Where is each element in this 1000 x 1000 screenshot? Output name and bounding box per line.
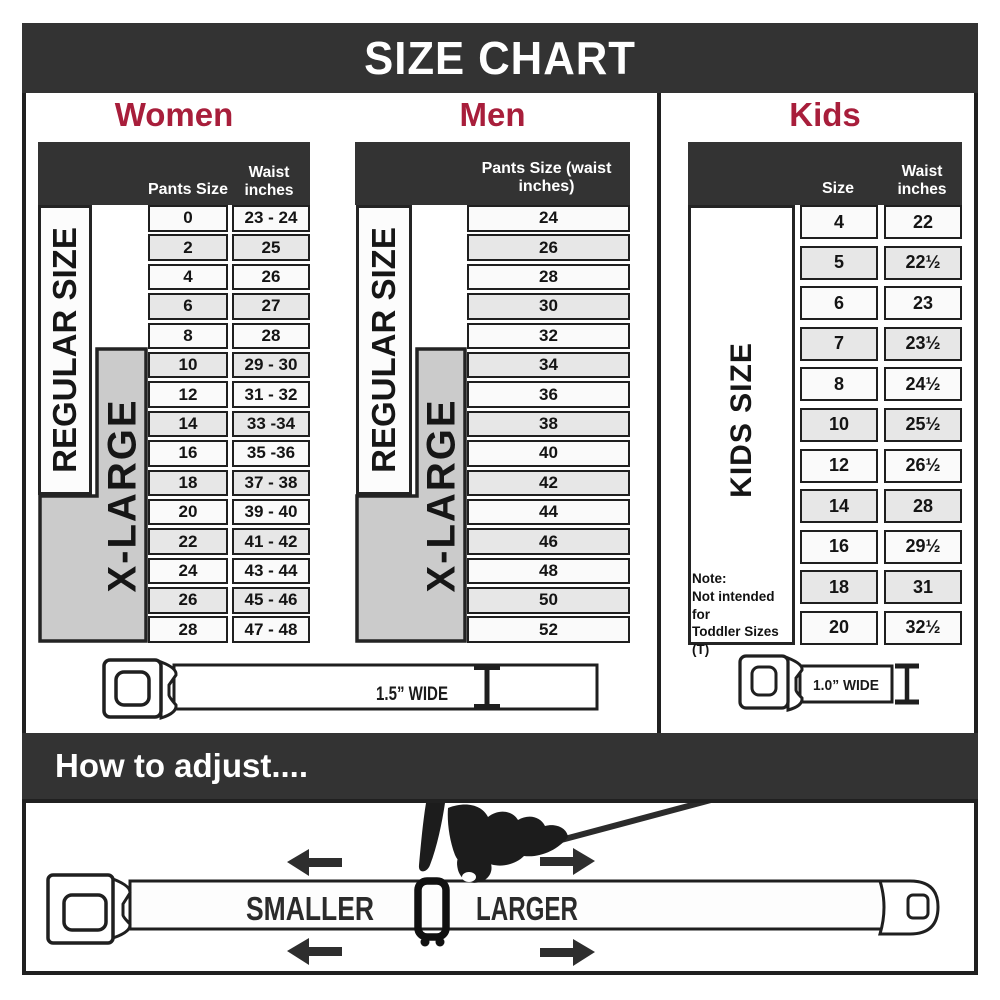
waist-inches-cell: 22½ [884, 246, 962, 280]
waist-inches-cell: 28 [884, 489, 962, 523]
men-table-row: 36 [467, 381, 630, 408]
men-section-heading: Men [355, 96, 630, 134]
waist-inches-cell: 41 - 42 [232, 528, 310, 555]
size-cell: 12 [800, 449, 878, 483]
pants-size-cell: 50 [467, 587, 630, 614]
men-table-row: 42 [467, 470, 630, 497]
pants-size-cell: 22 [148, 528, 228, 555]
waist-inches-cell: 31 [884, 570, 962, 604]
buckle-button [64, 895, 106, 930]
women-table-row: 8 28 [148, 323, 310, 350]
buckle-lip [113, 879, 130, 938]
waist-inches-cell: 45 - 46 [232, 587, 310, 614]
pants-size-cell: 30 [467, 293, 630, 320]
women-col-waist-inches: Waist inches [228, 164, 310, 199]
men-col-pants-size: Pants Size (waist inches) [463, 160, 630, 196]
women-table-row: 24 43 - 44 [148, 558, 310, 585]
adjust-diagram-panel: SMALLER LARGER [22, 799, 978, 975]
kids-section-heading: Kids [688, 96, 962, 134]
waist-inches-cell: 29 - 30 [232, 352, 310, 379]
pants-size-cell: 16 [148, 440, 228, 467]
kids-table-row: 4 22 [800, 205, 962, 239]
kids-table-row: 6 23 [800, 286, 962, 320]
kids-table-header: Size Waist inches [688, 142, 962, 205]
width-measure-icon [895, 664, 919, 704]
pants-size-cell: 20 [148, 499, 228, 526]
adjuster-foot [421, 938, 430, 947]
adjuster-foot [436, 938, 445, 947]
pants-size-cell: 6 [148, 293, 228, 320]
waist-inches-cell: 26 [232, 264, 310, 291]
women-rows: 0 23 - 24 2 25 4 26 6 27 8 28 [148, 205, 310, 643]
adjust-diagram: SMALLER LARGER [26, 803, 974, 971]
waist-inches-cell: 22 [884, 205, 962, 239]
kids-table-row: 18 31 [800, 570, 962, 604]
waist-inches-cell: 33 -34 [232, 411, 310, 438]
pants-size-cell: 26 [148, 587, 228, 614]
women-section-heading: Women [38, 96, 310, 134]
men-rows: 24 26 28 30 32 34 36 [467, 205, 630, 643]
size-cell: 18 [800, 570, 878, 604]
pants-size-cell: 0 [148, 205, 228, 232]
men-table-row: 50 [467, 587, 630, 614]
waist-inches-cell: 24½ [884, 367, 962, 401]
kids-table-row: 7 23½ [800, 327, 962, 361]
men-table-row: 40 [467, 440, 630, 467]
waist-inches-cell: 23 [884, 286, 962, 320]
pants-size-cell: 28 [148, 616, 228, 643]
men-table-row: 48 [467, 558, 630, 585]
pants-size-cell: 42 [467, 470, 630, 497]
kids-col-size: Size [796, 180, 880, 198]
women-table-row: 14 33 -34 [148, 411, 310, 438]
size-cell: 6 [800, 286, 878, 320]
kids-size-label: KIDS SIZE [725, 342, 759, 498]
kids-col-waist-inches: Waist inches [882, 163, 962, 198]
waist-inches-cell: 25 [232, 234, 310, 261]
kids-table-row: 10 25½ [800, 408, 962, 442]
women-col-pants-size: Pants Size [144, 181, 232, 199]
women-table-row: 26 45 - 46 [148, 587, 310, 614]
pants-size-cell: 14 [148, 411, 228, 438]
women-regular-size-band: REGULAR SIZE [38, 205, 92, 495]
buckle-button [752, 667, 776, 695]
waist-inches-cell: 28 [232, 323, 310, 350]
pants-size-cell: 46 [467, 528, 630, 555]
pants-size-cell: 12 [148, 381, 228, 408]
pants-size-cell: 44 [467, 499, 630, 526]
size-cell: 16 [800, 530, 878, 564]
women-table-row: 0 23 - 24 [148, 205, 310, 232]
men-table-row: 46 [467, 528, 630, 555]
kids-note: Note: Not intended for Toddler Sizes (T) [692, 570, 792, 659]
size-cell: 8 [800, 367, 878, 401]
how-to-adjust-heading: How to adjust.... [22, 747, 308, 785]
pants-size-cell: 36 [467, 381, 630, 408]
women-table-header: Pants Size Waist inches [38, 142, 310, 205]
pants-size-cell: 40 [467, 440, 630, 467]
pants-size-cell: 32 [467, 323, 630, 350]
pants-size-cell: 4 [148, 264, 228, 291]
men-xlarge-label: X-LARGE [420, 398, 465, 592]
size-cell: 10 [800, 408, 878, 442]
waist-inches-cell: 26½ [884, 449, 962, 483]
men-table-row: 52 [467, 616, 630, 643]
waist-inches-cell: 47 - 48 [232, 616, 310, 643]
kids-table-row: 14 28 [800, 489, 962, 523]
women-table-row: 10 29 - 30 [148, 352, 310, 379]
kids-rows: 4 22 5 22½ 6 23 7 23½ 8 24½ [800, 205, 962, 645]
pants-size-cell: 24 [467, 205, 630, 232]
kids-belt-illustration: 1.0” WIDE [728, 650, 932, 720]
women-table-row: 20 39 - 40 [148, 499, 310, 526]
pants-size-cell: 10 [148, 352, 228, 379]
men-xlarge-label-wrap: X-LARGE [417, 347, 467, 643]
size-cell: 14 [800, 489, 878, 523]
men-table-row: 34 [467, 352, 630, 379]
waist-inches-cell: 35 -36 [232, 440, 310, 467]
men-table-row: 26 [467, 234, 630, 261]
pants-size-cell: 8 [148, 323, 228, 350]
pants-size-cell: 24 [148, 558, 228, 585]
men-table-header: Pants Size (waist inches) [355, 142, 630, 205]
size-cell: 4 [800, 205, 878, 239]
women-table-row: 28 47 - 48 [148, 616, 310, 643]
kids-size-label-wrap: KIDS SIZE [688, 235, 795, 605]
waist-inches-cell: 29½ [884, 530, 962, 564]
pants-size-cell: 18 [148, 470, 228, 497]
how-to-adjust-bar: How to adjust.... [22, 733, 978, 799]
women-table-row: 12 31 - 32 [148, 381, 310, 408]
men-table-row: 44 [467, 499, 630, 526]
men-table-row: 30 [467, 293, 630, 320]
waist-inches-cell: 43 - 44 [232, 558, 310, 585]
section-divider [657, 93, 661, 733]
women-table-row: 6 27 [148, 293, 310, 320]
women-xlarge-label: X-LARGE [100, 398, 145, 592]
pants-size-cell: 52 [467, 616, 630, 643]
title-bar: SIZE CHART [22, 23, 978, 93]
women-table-row: 22 41 - 42 [148, 528, 310, 555]
waist-inches-cell: 31 - 32 [232, 381, 310, 408]
men-regular-size-band: REGULAR SIZE [356, 205, 412, 495]
belt-tip-hole [908, 895, 928, 918]
kids-table-row: 8 24½ [800, 367, 962, 401]
pants-size-cell: 26 [467, 234, 630, 261]
buckle-button [116, 672, 149, 705]
kids-note-line2: Not intended for [692, 588, 792, 624]
waist-inches-cell: 23 - 24 [232, 205, 310, 232]
kids-table-row: 16 29½ [800, 530, 962, 564]
page-title: SIZE CHART [364, 31, 636, 85]
women-table-row: 16 35 -36 [148, 440, 310, 467]
kids-table-row: 20 32½ [800, 611, 962, 645]
men-table-row: 28 [467, 264, 630, 291]
waist-inches-cell: 27 [232, 293, 310, 320]
women-table-row: 2 25 [148, 234, 310, 261]
women-regular-size-label: REGULAR SIZE [46, 227, 84, 473]
size-cell: 5 [800, 246, 878, 280]
men-table-row: 32 [467, 323, 630, 350]
adult-belt-illustration: 1.5” WIDE [95, 650, 615, 730]
waist-inches-cell: 32½ [884, 611, 962, 645]
waist-inches-cell: 37 - 38 [232, 470, 310, 497]
size-chart-infographic: SIZE CHART Women Men Kids Pants Size Wai… [0, 0, 1000, 1000]
adult-belt-width-label: 1.5” WIDE [376, 684, 448, 705]
pants-size-cell: 48 [467, 558, 630, 585]
size-cell: 20 [800, 611, 878, 645]
smaller-label: SMALLER [246, 890, 374, 927]
size-cell: 7 [800, 327, 878, 361]
pants-size-cell: 2 [148, 234, 228, 261]
waist-inches-cell: 25½ [884, 408, 962, 442]
women-table-row: 18 37 - 38 [148, 470, 310, 497]
larger-label: LARGER [476, 890, 578, 927]
pants-size-cell: 28 [467, 264, 630, 291]
pants-size-cell: 34 [467, 352, 630, 379]
pants-size-cell: 38 [467, 411, 630, 438]
women-xlarge-label-wrap: X-LARGE [97, 347, 148, 643]
waist-inches-cell: 23½ [884, 327, 962, 361]
kids-table-row: 12 26½ [800, 449, 962, 483]
kids-table-row: 5 22½ [800, 246, 962, 280]
men-regular-size-label: REGULAR SIZE [365, 227, 403, 473]
waist-inches-cell: 39 - 40 [232, 499, 310, 526]
men-table-row: 24 [467, 205, 630, 232]
kids-belt-width-label: 1.0” WIDE [813, 677, 879, 694]
kids-note-line1: Note: [692, 570, 792, 588]
women-table-row: 4 26 [148, 264, 310, 291]
men-table-row: 38 [467, 411, 630, 438]
hand-illustration [419, 803, 568, 883]
